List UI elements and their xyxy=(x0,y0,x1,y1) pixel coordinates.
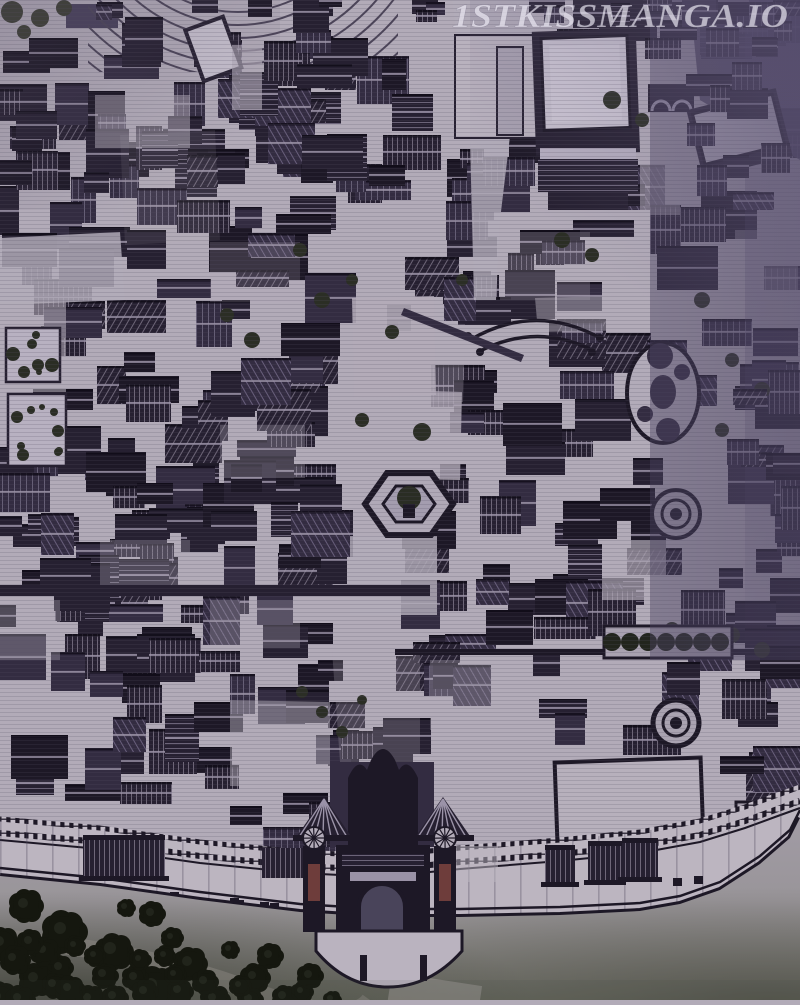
svg-text:1STKISSMANGA.IO: 1STKISSMANGA.IO xyxy=(452,0,788,35)
